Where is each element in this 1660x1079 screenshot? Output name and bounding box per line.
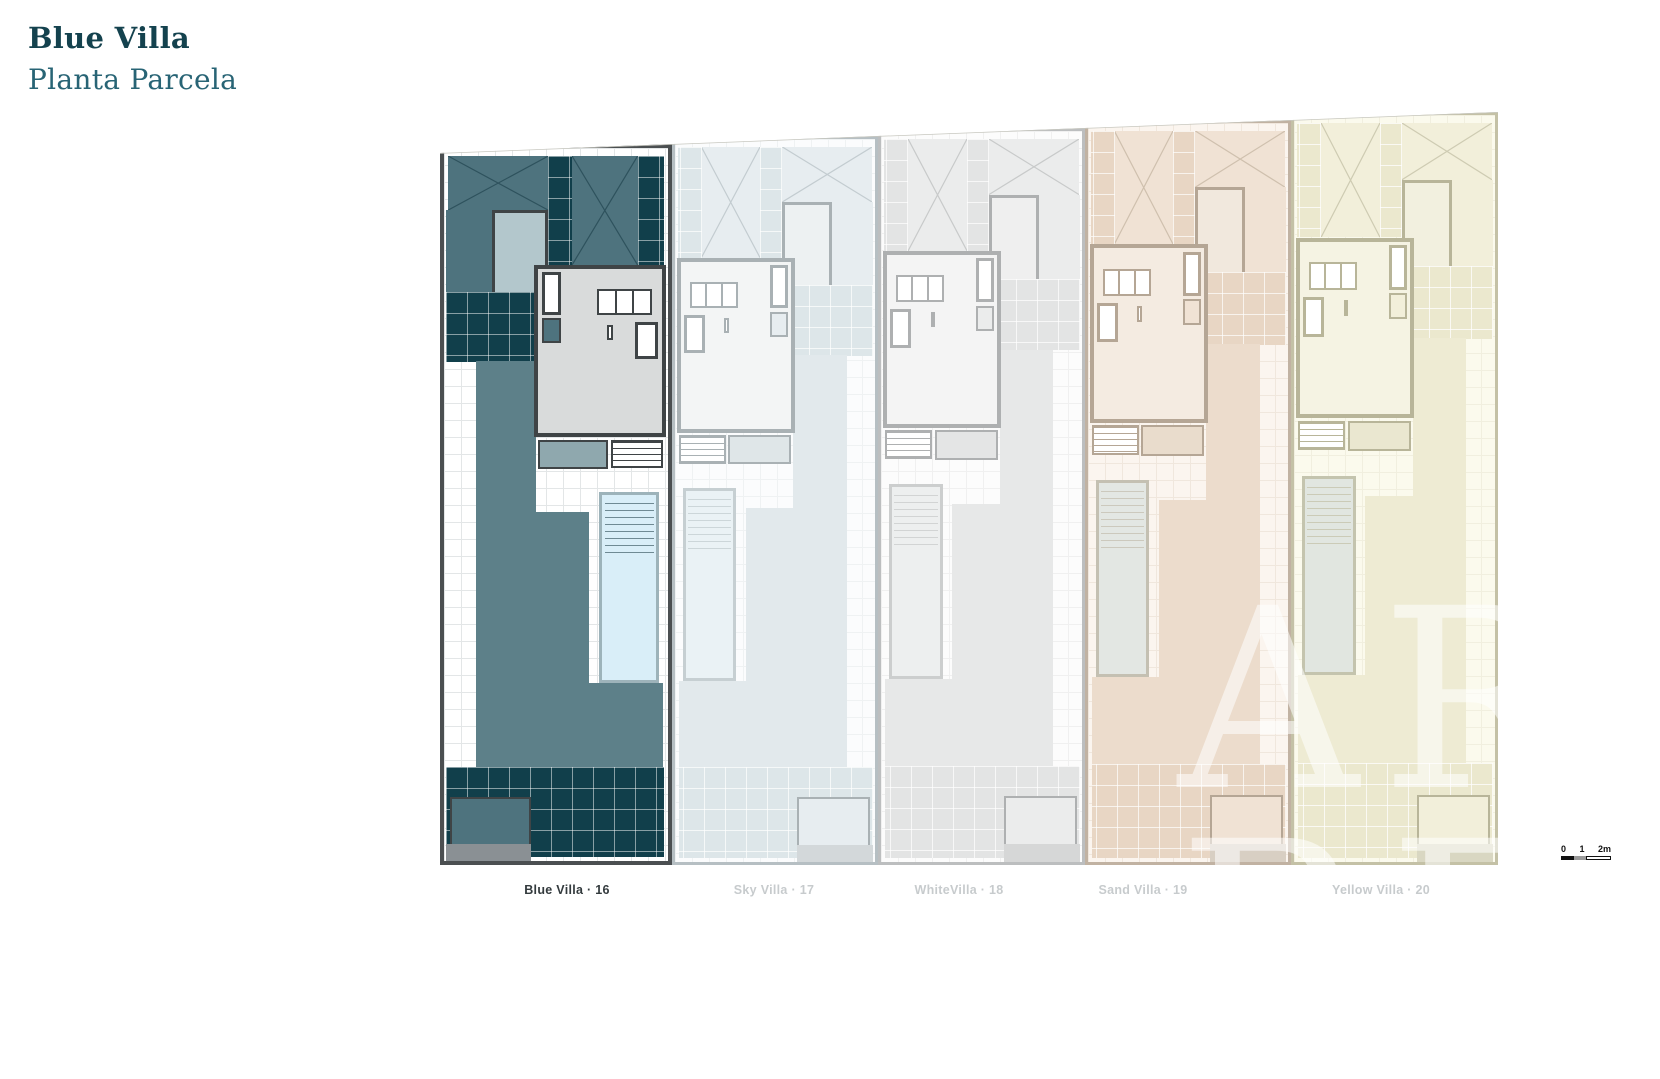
deck xyxy=(1141,425,1204,455)
x-deck-top-right xyxy=(572,156,638,265)
lawn-upper xyxy=(476,361,536,512)
villa-label-yellow[interactable]: Yellow Villa · 20 xyxy=(1332,883,1430,897)
grid-patio-right xyxy=(678,147,701,258)
lightwell-left xyxy=(976,258,994,302)
skylight-panes xyxy=(1105,269,1151,296)
stairs xyxy=(1298,421,1345,451)
side-yard-block xyxy=(832,202,873,285)
door-mark xyxy=(931,312,936,327)
x-deck-top-right xyxy=(702,147,761,258)
lightwell-left xyxy=(1183,252,1201,296)
villa-plan-content xyxy=(675,139,875,862)
villa-strip-sky[interactable] xyxy=(672,136,878,865)
grid-patio-left xyxy=(793,285,873,356)
curb-strip xyxy=(1210,844,1286,862)
scale-label-0: 0 xyxy=(1561,844,1566,854)
lawn-lower xyxy=(1092,677,1259,764)
lawn-lower xyxy=(1298,675,1466,763)
stairs xyxy=(885,430,932,459)
grid-patio-center xyxy=(967,139,989,251)
pool-steps xyxy=(1307,487,1351,545)
grid-patio-right xyxy=(638,156,664,265)
skylight-panes xyxy=(597,289,649,315)
lightwell-right xyxy=(1097,303,1118,342)
lightwell-right xyxy=(635,322,659,360)
lightwell-left xyxy=(770,265,788,308)
pool-steps xyxy=(605,503,655,558)
scale-bar: 0 1 2m xyxy=(1561,844,1611,860)
villa-label-white[interactable]: WhiteVilla · 18 xyxy=(914,883,1003,897)
grid-patio-right xyxy=(884,139,908,251)
door-mark xyxy=(1137,306,1142,321)
grid-patio-left xyxy=(446,292,536,362)
lightwell-right xyxy=(684,315,705,353)
lightwell-right xyxy=(890,309,911,348)
pool-steps xyxy=(1101,491,1145,548)
building-footprint xyxy=(1090,244,1208,423)
building-footprint xyxy=(534,265,666,438)
villa-label-row: Blue Villa · 16Sky Villa · 17WhiteVilla … xyxy=(0,883,1660,901)
lightwell-right xyxy=(1303,297,1324,337)
planter-nook xyxy=(1389,293,1407,319)
side-yard-block xyxy=(1245,187,1286,272)
planter-nook xyxy=(542,318,562,343)
x-deck-top-left xyxy=(1402,123,1492,180)
stairs xyxy=(1092,425,1138,455)
grid-patio-right xyxy=(1297,123,1321,237)
building-footprint xyxy=(883,251,1002,428)
villa-strip-yellow[interactable] xyxy=(1291,112,1498,865)
x-deck-top-left xyxy=(448,156,548,210)
grid-patio-center xyxy=(1380,123,1402,237)
curb-strip xyxy=(1417,844,1493,862)
lawn-lower xyxy=(679,681,846,766)
site-plan xyxy=(440,112,1498,865)
lawn-upper xyxy=(1413,338,1467,496)
lawn-lower xyxy=(476,683,663,767)
stairs xyxy=(679,435,725,464)
deck xyxy=(1348,421,1411,452)
skylight-panes xyxy=(898,275,944,302)
header: Blue Villa Planta Parcela xyxy=(28,22,237,96)
grid-patio-left xyxy=(1413,266,1493,339)
villa-label-sand[interactable]: Sand Villa · 19 xyxy=(1098,883,1187,897)
page-subtitle: Planta Parcela xyxy=(28,63,237,96)
grid-patio-right xyxy=(1091,131,1114,244)
building-footprint xyxy=(677,258,795,433)
scale-label-2m: 2m xyxy=(1598,844,1611,854)
villa-label-blue[interactable]: Blue Villa · 16 xyxy=(524,883,610,897)
lightwell-left xyxy=(1389,245,1407,290)
pool-steps xyxy=(688,499,732,555)
curb-strip xyxy=(446,844,531,861)
x-deck-top-right xyxy=(1321,123,1380,237)
grid-patio-center xyxy=(760,147,782,258)
grid-patio-center xyxy=(548,156,572,265)
pool xyxy=(889,484,943,679)
x-deck-top-left xyxy=(989,139,1079,195)
scale-label-1: 1 xyxy=(1579,844,1584,854)
villa-strip-blue[interactable] xyxy=(440,144,672,865)
deck xyxy=(728,435,791,465)
side-yard-block xyxy=(446,210,492,292)
scale-bar-labels: 0 1 2m xyxy=(1561,844,1611,854)
grid-patio-left xyxy=(1000,279,1080,351)
villa-plan-content xyxy=(1088,123,1288,862)
door-mark xyxy=(607,325,613,340)
pool xyxy=(1096,480,1149,677)
grid-patio-left xyxy=(1206,272,1286,344)
planter-nook xyxy=(770,312,788,337)
page-title: Blue Villa xyxy=(28,22,237,55)
x-deck-top-left xyxy=(1195,131,1285,187)
lawn-upper xyxy=(1000,350,1054,505)
pool xyxy=(683,488,736,681)
door-mark xyxy=(1344,300,1349,316)
skylight-panes xyxy=(1311,262,1357,290)
building-footprint xyxy=(1296,238,1415,419)
curb-strip xyxy=(1004,844,1080,862)
lawn-upper xyxy=(1206,344,1259,501)
x-deck-top-right xyxy=(1115,131,1174,244)
side-yard-block xyxy=(1452,180,1493,266)
lightwell-left xyxy=(542,272,562,315)
x-deck-top-left xyxy=(782,147,872,202)
skylight-panes xyxy=(692,282,738,309)
stairs xyxy=(611,440,663,469)
x-deck-top-right xyxy=(908,139,967,251)
deck xyxy=(538,440,609,469)
planter-nook xyxy=(1183,299,1201,325)
planter-nook xyxy=(976,306,994,331)
villa-plan-content xyxy=(444,148,668,861)
pool xyxy=(1302,476,1356,675)
side-yard-block xyxy=(1039,195,1080,279)
lawn-lower xyxy=(885,679,1053,765)
curb-strip xyxy=(797,845,873,862)
pool xyxy=(599,492,659,682)
villa-label-sky[interactable]: Sky Villa · 17 xyxy=(734,883,814,897)
villa-plan-content xyxy=(1294,115,1495,862)
villa-plan-content xyxy=(881,131,1082,862)
villa-strip-white[interactable] xyxy=(878,128,1085,865)
grid-patio-center xyxy=(1173,131,1195,244)
deck xyxy=(935,430,998,460)
scale-bar-segments xyxy=(1561,856,1611,860)
pool-steps xyxy=(894,495,938,552)
door-mark xyxy=(724,318,729,333)
villa-strip-sand[interactable] xyxy=(1085,120,1291,865)
lawn-upper xyxy=(793,355,846,508)
